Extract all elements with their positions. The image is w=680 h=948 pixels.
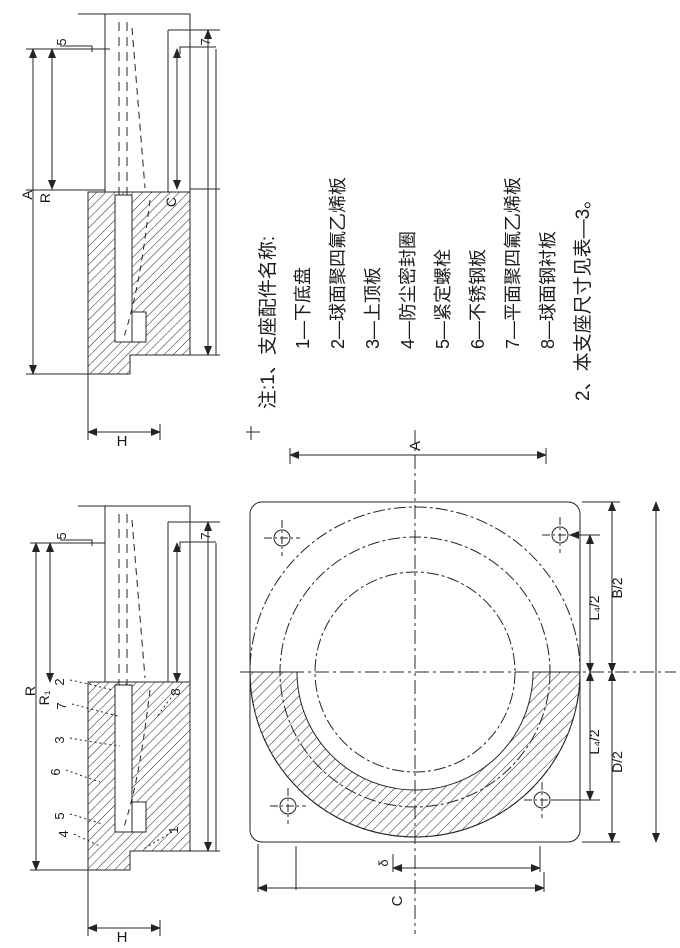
dim-label-a: A: [20, 190, 35, 200]
callout-5: 5: [52, 812, 67, 819]
parts-list-item-8: 8—球面钢衬板: [531, 57, 566, 409]
dim-label-top-left: 5: [54, 532, 69, 539]
callout-6: 6: [48, 768, 63, 775]
dim-label-l4-2-upper: L₄/2: [586, 595, 602, 620]
dimension-h-bottom: H: [88, 374, 160, 450]
parts-list-item-3: 3—上顶板: [356, 57, 391, 409]
dim-label-h: H: [117, 929, 128, 946]
callout-4: 4: [56, 830, 71, 837]
parts-list-item-7: 7—平面聚四氟乙烯板: [496, 57, 531, 409]
section-view-bottom: R R₁ 5 7 2 7 3 6 5 4 8 1: [20, 486, 255, 948]
dimension-hooks-top: 5 7: [54, 532, 216, 549]
notes-footer: 2、本支座尺寸见表—3。: [566, 57, 601, 409]
dimension-top: A: [246, 426, 546, 464]
dim-label-top-right: 7: [198, 38, 213, 45]
dimension-hooks-top: 5 7: [54, 38, 216, 54]
parts-list-item-5: 5—紧定螺栓: [426, 57, 461, 409]
dim-label-delta: δ: [376, 859, 391, 866]
dim-label-c: C: [389, 895, 406, 906]
dim-label-r1: R₁: [36, 690, 52, 705]
bolt-hole-top-left: [264, 520, 300, 556]
parts-list-item-6: 6—不锈钢板: [461, 57, 496, 409]
dim-label-top-right: 7: [198, 532, 213, 539]
callout-3: 3: [52, 736, 67, 743]
parts-list-item-2: 2—球面聚四氟乙烯板: [321, 57, 356, 409]
dim-label-r: R: [37, 193, 53, 203]
base-block-hatched: [60, 192, 190, 374]
parts-list-item-4: 4—防尘密封圈: [391, 57, 426, 409]
notes-title: 注:1、支座配件名称:: [251, 57, 286, 409]
base-block-hatched: [60, 682, 190, 870]
notes-block: 注:1、支座配件名称: 1—下底盘 2—球面聚四氟乙烯板 3—上顶板 4—防尘密…: [251, 57, 641, 409]
top-plate: [78, 506, 190, 682]
callout-1: 1: [166, 826, 181, 833]
callout-2: 2: [52, 678, 67, 685]
dim-label-d-2: D/2: [609, 751, 625, 773]
dimension-h-bottom: H: [88, 870, 160, 946]
drawing-sheet: A R 5 7 C H: [0, 0, 680, 948]
dim-label-a: A: [407, 441, 424, 451]
section-view-top: A R 5 7 C H: [20, 2, 240, 464]
dim-label-l4-2-lower: L₄/2: [586, 729, 602, 754]
bolt-hole-bottom-left: [270, 788, 306, 824]
plan-view: A L₄/2 B/2 L₄/2 D/2 δ C: [238, 420, 680, 948]
parts-list-item-1: 1—下底盘: [286, 57, 321, 409]
dim-label-b-2: B/2: [609, 577, 625, 598]
dimensions-bottom: δ C: [258, 844, 544, 906]
top-plate: [78, 14, 190, 192]
dim-label-c: C: [163, 197, 179, 207]
dim-label-top-left: 5: [54, 38, 69, 45]
dim-label-h: H: [117, 433, 128, 450]
center-lines: [240, 430, 676, 934]
callout-8: 8: [168, 688, 183, 695]
callout-7: 7: [54, 702, 69, 709]
